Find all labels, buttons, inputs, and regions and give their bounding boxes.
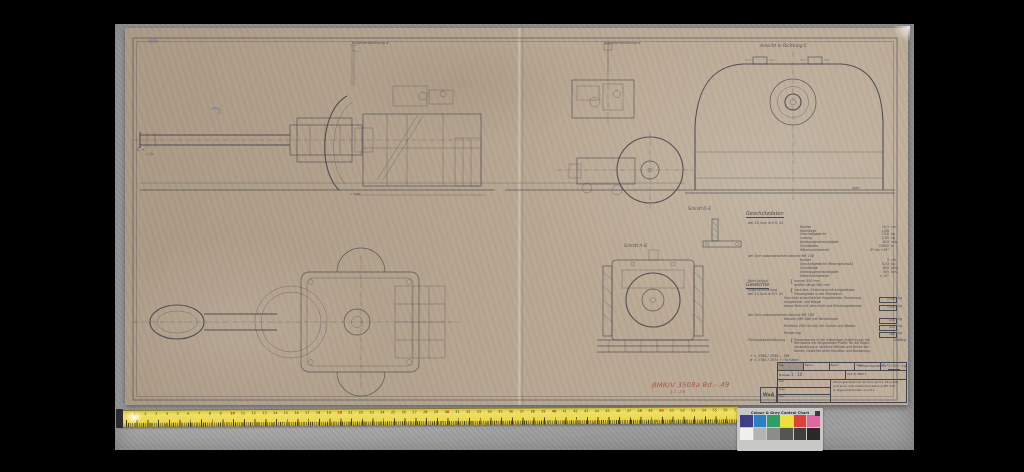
label-kugelverankerung-a: Kugelverankerung a (352, 41, 388, 45)
ruler-number: 10 (230, 411, 235, 415)
dimension-view4: 4936 (852, 186, 859, 190)
ruler-number: 23 (369, 410, 373, 414)
spec-row: Höhenrichtbereich-8° bis +45° (800, 249, 906, 253)
gun-data-sub2: der 3cm automatischen Kanone MK 108 (748, 254, 906, 258)
ruler-number: 12 (252, 411, 256, 415)
ruler-number: 38 (530, 409, 534, 413)
colour-control-chart: Colour & Grey Control Chart (737, 408, 823, 451)
color-swatch (754, 428, 767, 440)
ruler-number: 20 (337, 410, 342, 414)
scale-value: 1 : 10 (791, 372, 803, 377)
color-swatch (780, 415, 793, 427)
waffenamt-stamp: WaA (760, 387, 777, 403)
ruler-number: 7 (198, 411, 200, 415)
ruler-number: 51 (670, 408, 674, 412)
ruler-number: 55 (713, 408, 717, 412)
grid-gepr: Gepr. (778, 388, 830, 396)
color-swatch (794, 415, 807, 427)
ruler-number: 37 (520, 409, 524, 413)
ruler-number: 24 (380, 410, 384, 414)
ruler-number: 40 (552, 409, 557, 413)
field-name: Name (804, 363, 830, 370)
chart-grey-row (740, 428, 820, 441)
label-direction-c: C → (137, 147, 144, 152)
color-swatch (740, 415, 753, 427)
tape-end-clip (116, 409, 123, 428)
weight-row: Kanone (MK 108) mit Panzerkugel 400kg (784, 318, 906, 324)
ruler-number: 8 (209, 411, 211, 415)
schnitt-de-view (703, 219, 741, 247)
ruler-number: 36 (509, 409, 513, 413)
label-ansicht-richtung-c: Ansicht in Richtung C (760, 44, 807, 49)
field-tag: Tag (778, 363, 804, 370)
chart-corner-mark (815, 411, 820, 416)
ruler-number: 17 (305, 410, 309, 414)
color-swatch (807, 428, 820, 440)
color-swatch (740, 428, 753, 440)
ruler-number: 3 (155, 411, 157, 415)
title-block: Tag Name Bearb. Gepr. Bl. 1 Maßstab 1 : … (777, 362, 907, 403)
red-archive-note: BMR/V 3508a Bd.–.49 13.26 (652, 381, 730, 395)
ruler-number: 14 (273, 411, 277, 415)
centre-section-view (557, 40, 693, 210)
label-schnitt-de: Schnitt D–E (688, 206, 711, 211)
schnitt-ab-view (597, 250, 709, 352)
ruler-number: 15 (284, 410, 288, 414)
ruler-number: 4 (166, 411, 168, 415)
field-gepr: Gepr. (855, 363, 881, 370)
ruler-number: 39 (541, 409, 545, 413)
ruler-number: 47 (627, 408, 631, 412)
ruler-number: 35 (498, 409, 502, 413)
ruler-number: 22 (359, 410, 363, 414)
color-swatch (794, 428, 807, 440)
weights-block: Gewichte der 10,5cm le.F.H. 43 Geschütz … (746, 282, 906, 370)
ruler-number: 53 (691, 408, 695, 412)
photo-of-technical-drawing: Kugelverankerung a Kugelverankerung b An… (0, 0, 1024, 472)
ruler-number: 26 (402, 410, 406, 414)
tape-glare (126, 411, 142, 424)
grid-gez: Gez. (778, 380, 830, 388)
ruler-number: 19 (327, 410, 331, 414)
ruler-number: 54 (702, 408, 706, 412)
pencil-marks (147, 39, 219, 114)
ruler-number: 56 (723, 408, 727, 412)
ruler-number: 5 (177, 411, 179, 415)
label-kugelverankerung-b: Kugelverankerung b (604, 41, 640, 45)
armour-note: Führungsbeschädigung{ Panzerwanne in der… (748, 339, 906, 355)
plan-view (133, 248, 460, 396)
ruler-number: 30 (445, 409, 450, 413)
weight-row: davon Rohr mit Verschluß und Mündungsbre… (784, 305, 906, 311)
drawing-title: Sturmgeschütz mit 10,5cm le.F.H. 43 (L/2… (831, 380, 906, 402)
ruler-number: 2 (144, 411, 146, 415)
ruler-number: 32 (466, 409, 470, 413)
ruler-number: 31 (455, 409, 459, 413)
chart-colour-row (740, 415, 820, 428)
ruler-number: 21 (348, 410, 352, 414)
color-swatch (767, 428, 780, 440)
ruler-number: 27 (412, 410, 416, 414)
weight-row: Geschütz einschließlich Kugelblende, Pan… (784, 297, 906, 305)
gun-data-sub1: der 10,5cm le.F.H. 43 (748, 221, 906, 225)
ruler-number: 9 (219, 411, 221, 415)
ruler-number: 28 (423, 410, 427, 414)
ruler-number: 49 (648, 408, 652, 412)
label-schnitt-ab: Schnitt A–B (624, 243, 647, 248)
ruler-number: 43 (584, 409, 588, 413)
weights-title: Gewichte (746, 282, 769, 289)
color-swatch (754, 415, 767, 427)
gun-data-title: Geschützdaten (746, 211, 784, 218)
grid-ges: Ges. (778, 395, 830, 402)
front-view-richtung-c (685, 52, 895, 200)
ruler-number: 18 (316, 410, 320, 414)
ruler-number: 16 (294, 410, 298, 414)
field-bearb: Bearb. (830, 363, 856, 370)
ruler-number: 29 (434, 410, 438, 414)
color-swatch (767, 415, 780, 427)
dimension-view1: ≈ 4790 (350, 192, 360, 196)
weight-row: Munition (500 Schuß) mit Gurten und Käst… (784, 325, 906, 331)
color-swatch (780, 428, 793, 440)
ruler-number: 46 (616, 408, 620, 412)
ruler-number: 48 (637, 408, 641, 412)
ruler-number: 52 (680, 408, 684, 412)
ruler-number: 34 (487, 409, 491, 413)
ruler-number: 45 (605, 408, 609, 412)
ruler-number: 13 (262, 411, 266, 415)
ruler-number: 25 (391, 410, 395, 414)
drawing-number: 021 B 38677 (846, 371, 906, 379)
scale-label: Maßstab 1 : 10 (778, 371, 846, 379)
ruler-number: 42 (573, 409, 577, 413)
ruler-number: 6 (187, 411, 189, 415)
ruler-number: 11 (241, 411, 245, 415)
field-sheet-no: Bl. 1 (881, 363, 906, 370)
ruler-number: 50 (659, 408, 664, 412)
ruler-number: 41 (562, 409, 566, 413)
side-elevation-view (133, 45, 685, 195)
ruler-number: 33 (477, 409, 481, 413)
color-swatch (807, 415, 820, 427)
ruler-number: 44 (595, 409, 599, 413)
